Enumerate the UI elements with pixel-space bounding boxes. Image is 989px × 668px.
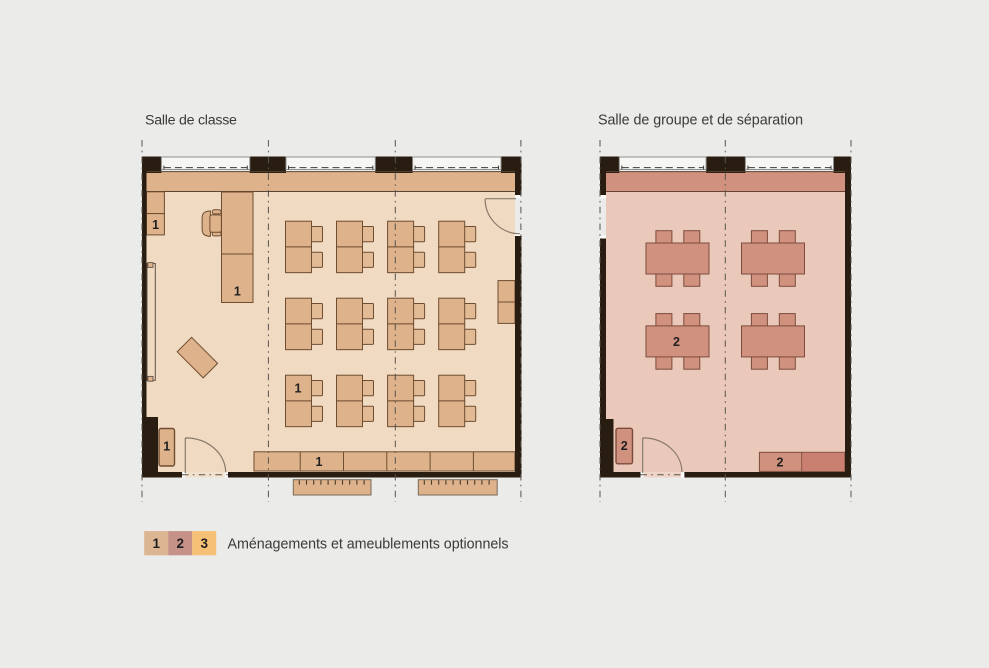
svg-text:Salle de classe: Salle de classe [145,113,237,129]
svg-text:1: 1 [295,381,302,395]
svg-text:3: 3 [200,536,208,551]
svg-text:Salle de groupe et de séparati: Salle de groupe et de séparation [598,113,803,129]
svg-text:2: 2 [777,456,784,470]
svg-text:1: 1 [152,536,160,551]
svg-text:Aménagements et ameublements o: Aménagements et ameublements optionnels [228,537,509,553]
svg-text:1: 1 [152,218,159,232]
svg-text:2: 2 [176,536,184,551]
svg-text:1: 1 [234,285,241,299]
svg-text:1: 1 [316,455,323,469]
svg-text:2: 2 [621,439,628,453]
svg-text:1: 1 [163,440,170,454]
svg-text:2: 2 [673,335,680,349]
